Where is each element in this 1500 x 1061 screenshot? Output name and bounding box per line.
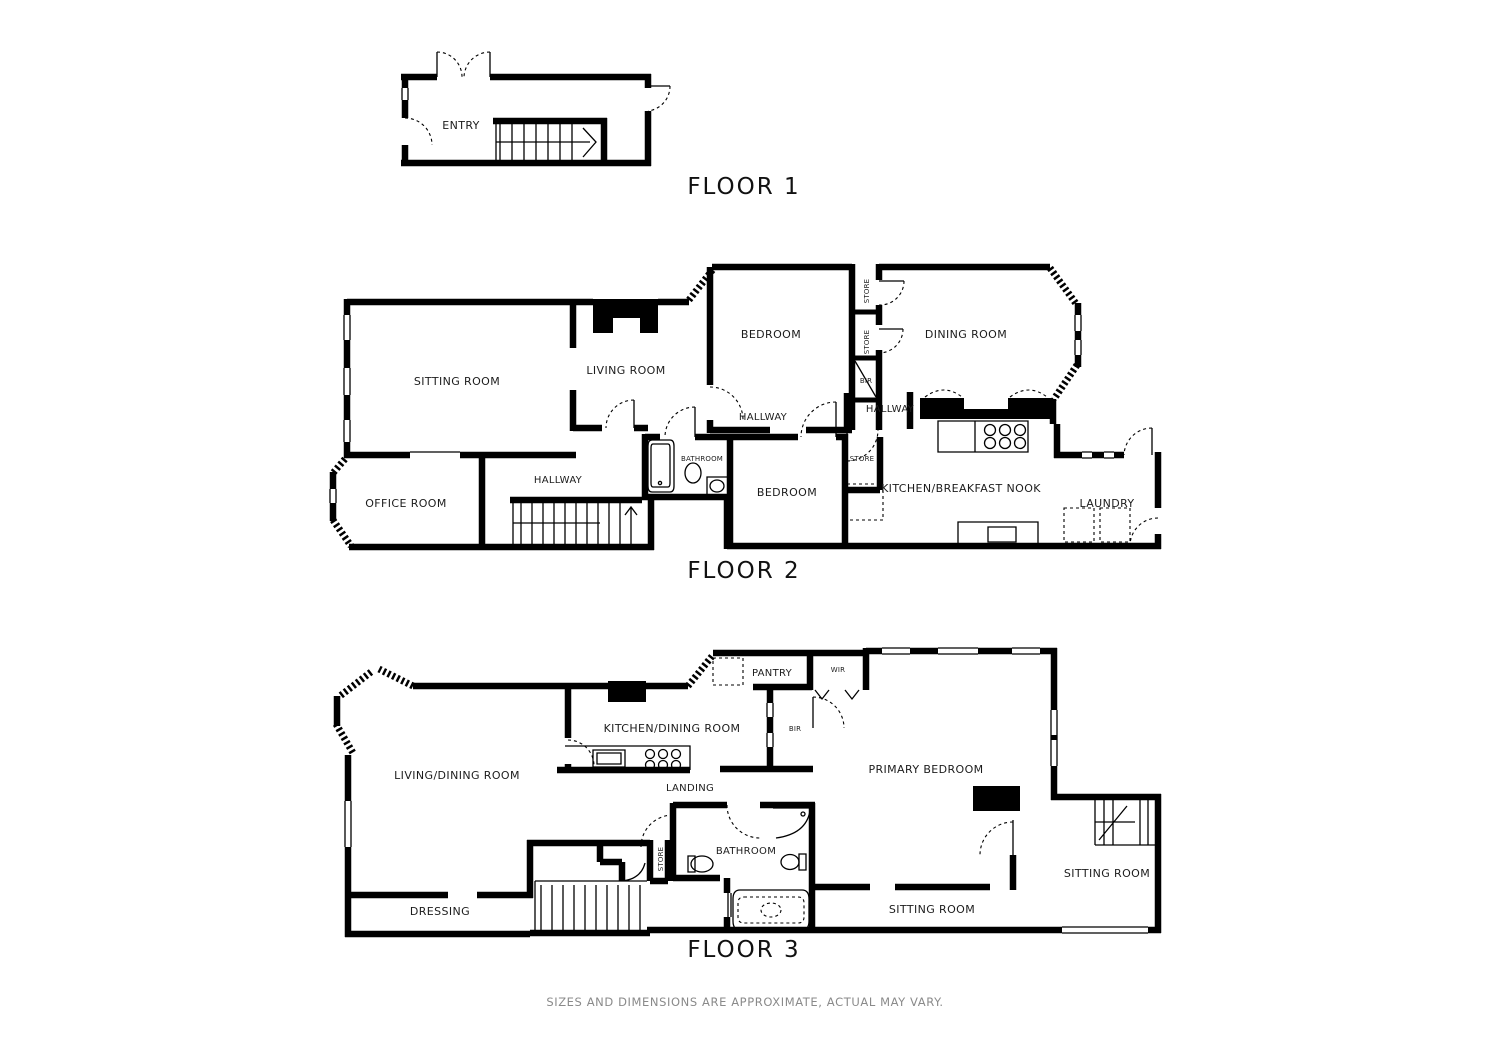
floor1-title: FLOOR 1 <box>687 174 800 200</box>
room-label-store-f3: STORE <box>657 847 665 872</box>
floor3-bedroom-media-unit <box>973 786 1020 811</box>
floor2-shelves <box>852 312 879 400</box>
floor1-walls <box>401 74 651 166</box>
disclaimer-text: SIZES AND DIMENSIONS ARE APPROXIMATE, AC… <box>546 995 943 1009</box>
floor2-plan: SITTING ROOM LIVING ROOM BEDROOM DINING … <box>330 264 1161 584</box>
room-label-landing-f3: LANDING <box>666 783 714 794</box>
floorplan-page: ENTRY FLOOR 1 SITTING ROOM LIVING ROOM <box>0 0 1500 1061</box>
floor2-stove <box>985 425 1026 449</box>
room-label-laundry-f2: LAUNDRY <box>1079 497 1134 510</box>
room-label-office-room-f2: OFFICE ROOM <box>365 497 447 510</box>
room-label-hallway-center-f2: HALLWAY <box>739 412 788 423</box>
room-label-store-upper-f2: STORE <box>863 279 871 304</box>
room-label-sitting-room-right-f3: SITTING ROOM <box>1064 867 1150 880</box>
room-label-bedroom-top-f2: BEDROOM <box>741 328 801 341</box>
floor3-walls <box>337 648 1161 937</box>
room-label-sitting-room-center-f3: SITTING ROOM <box>889 903 975 916</box>
floor2-stairs <box>513 500 637 547</box>
floor3-stairs <box>535 863 647 930</box>
room-label-bir-f2: BIR <box>860 377 872 385</box>
floor1-door-leaves <box>437 52 670 86</box>
room-label-dressing-f3: DRESSING <box>410 905 470 918</box>
floor3-plan: LIVING/DINING ROOM KITCHEN/DINING ROOM P… <box>336 648 1161 963</box>
floor3-stove <box>646 750 681 770</box>
floor3-extension-stairs <box>1095 800 1156 845</box>
floor1-windows <box>402 88 408 100</box>
floor1-stairs <box>496 121 596 160</box>
room-label-living-dining-f3: LIVING/DINING ROOM <box>394 769 520 782</box>
floor3-door-arcs <box>568 697 1013 855</box>
floorplan-canvas: ENTRY FLOOR 1 SITTING ROOM LIVING ROOM <box>0 0 1500 1061</box>
floor3-bathroom-fixtures <box>688 808 810 930</box>
floor2-title: FLOOR 2 <box>687 558 800 584</box>
floor3-pantry-shelf <box>713 658 743 685</box>
room-label-kitchen-f2: KITCHEN/BREAKFAST NOOK <box>881 482 1041 495</box>
floor3-bay-windows <box>336 655 713 753</box>
floor2-bathroom-fixtures <box>648 440 728 496</box>
room-label-pantry-f3: PANTRY <box>752 668 793 679</box>
floor1-plan: ENTRY FLOOR 1 <box>401 52 801 200</box>
room-label-store-lower-f2: STORE <box>863 330 871 355</box>
room-label-bir-f3: BIR <box>789 725 801 733</box>
room-label-store-small-f2: STORE <box>850 455 875 463</box>
room-label-hallway-right-f2: HALLWAY <box>866 404 915 415</box>
room-label-bathroom-f3: BATHROOM <box>716 846 776 857</box>
floor3-title: FLOOR 3 <box>687 937 800 963</box>
room-label-sitting-room-f2: SITTING ROOM <box>414 375 500 388</box>
room-label-kitchen-dining-f3: KITCHEN/DINING ROOM <box>604 722 741 735</box>
room-label-wir-f3: WIR <box>831 666 845 674</box>
room-label-primary-bedroom-f3: PRIMARY BEDROOM <box>868 763 983 776</box>
room-label-bathroom-f2: BATHROOM <box>681 455 723 463</box>
room-label-living-room-f2: LIVING ROOM <box>586 364 665 377</box>
room-label-dining-room-f2: DINING ROOM <box>925 328 1007 341</box>
room-label-entry: ENTRY <box>442 119 480 132</box>
room-label-bedroom-bottom-f2: BEDROOM <box>757 486 817 499</box>
room-label-hallway-left-f2: HALLWAY <box>534 475 583 486</box>
